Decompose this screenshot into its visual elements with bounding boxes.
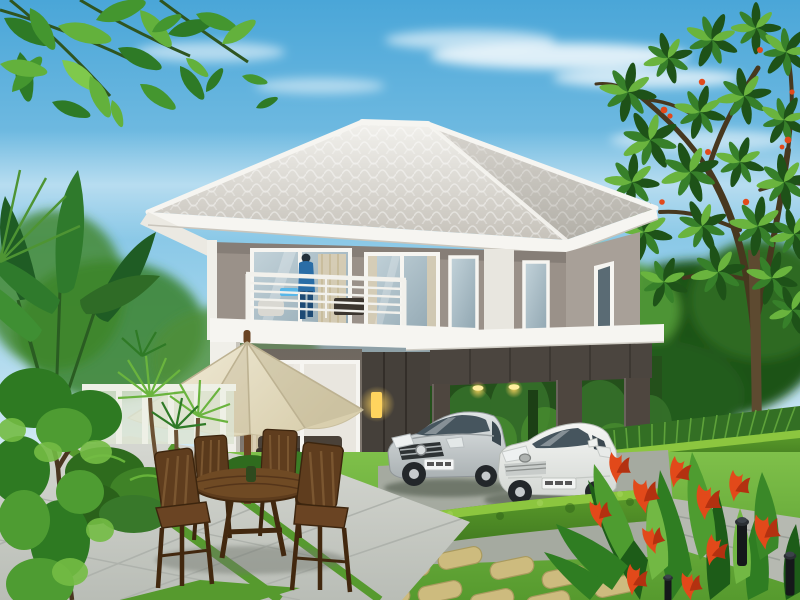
brand-emblem (520, 454, 531, 462)
wall-lamp (371, 392, 382, 418)
narrow-window (450, 257, 477, 331)
scene-canvas (0, 0, 800, 600)
table-centerpiece (246, 466, 256, 482)
narrow-window-2 (524, 262, 548, 336)
photo-two-story-house (0, 0, 800, 600)
chair-seat (294, 504, 348, 528)
brand-emblem (416, 445, 426, 455)
side-window (594, 261, 614, 334)
